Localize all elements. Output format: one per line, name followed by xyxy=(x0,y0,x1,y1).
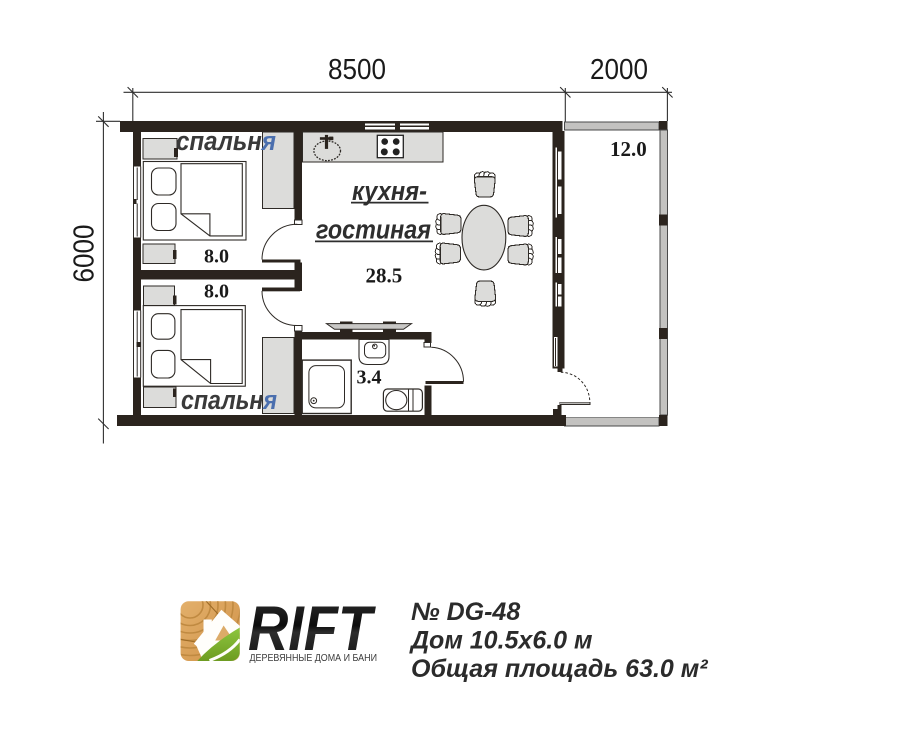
svg-text:8.0: 8.0 xyxy=(204,281,229,303)
svg-text:6000: 6000 xyxy=(69,225,101,283)
svg-text:12.0: 12.0 xyxy=(610,137,647,161)
svg-text:№ DG-48: № DG-48 xyxy=(411,598,520,626)
svg-text:8.0: 8.0 xyxy=(204,245,229,267)
svg-text:2000: 2000 xyxy=(590,54,648,86)
svg-text:28.5: 28.5 xyxy=(366,264,403,288)
svg-text:3.4: 3.4 xyxy=(357,367,382,389)
svg-text:спальня: спальня xyxy=(176,126,276,156)
svg-text:Дом 10.5x6.0 м: Дом 10.5x6.0 м xyxy=(409,627,593,655)
svg-text:ДЕРЕВЯННЫЕ ДОМА И БАНИ: ДЕРЕВЯННЫЕ ДОМА И БАНИ xyxy=(250,653,378,664)
svg-text:Общая площадь 63.0 м²: Общая площадь 63.0 м² xyxy=(411,655,708,683)
svg-text:гостиная: гостиная xyxy=(316,215,431,245)
svg-text:8500: 8500 xyxy=(328,54,386,86)
svg-text:спальня: спальня xyxy=(181,385,277,415)
svg-text:кухня-: кухня- xyxy=(352,176,427,206)
